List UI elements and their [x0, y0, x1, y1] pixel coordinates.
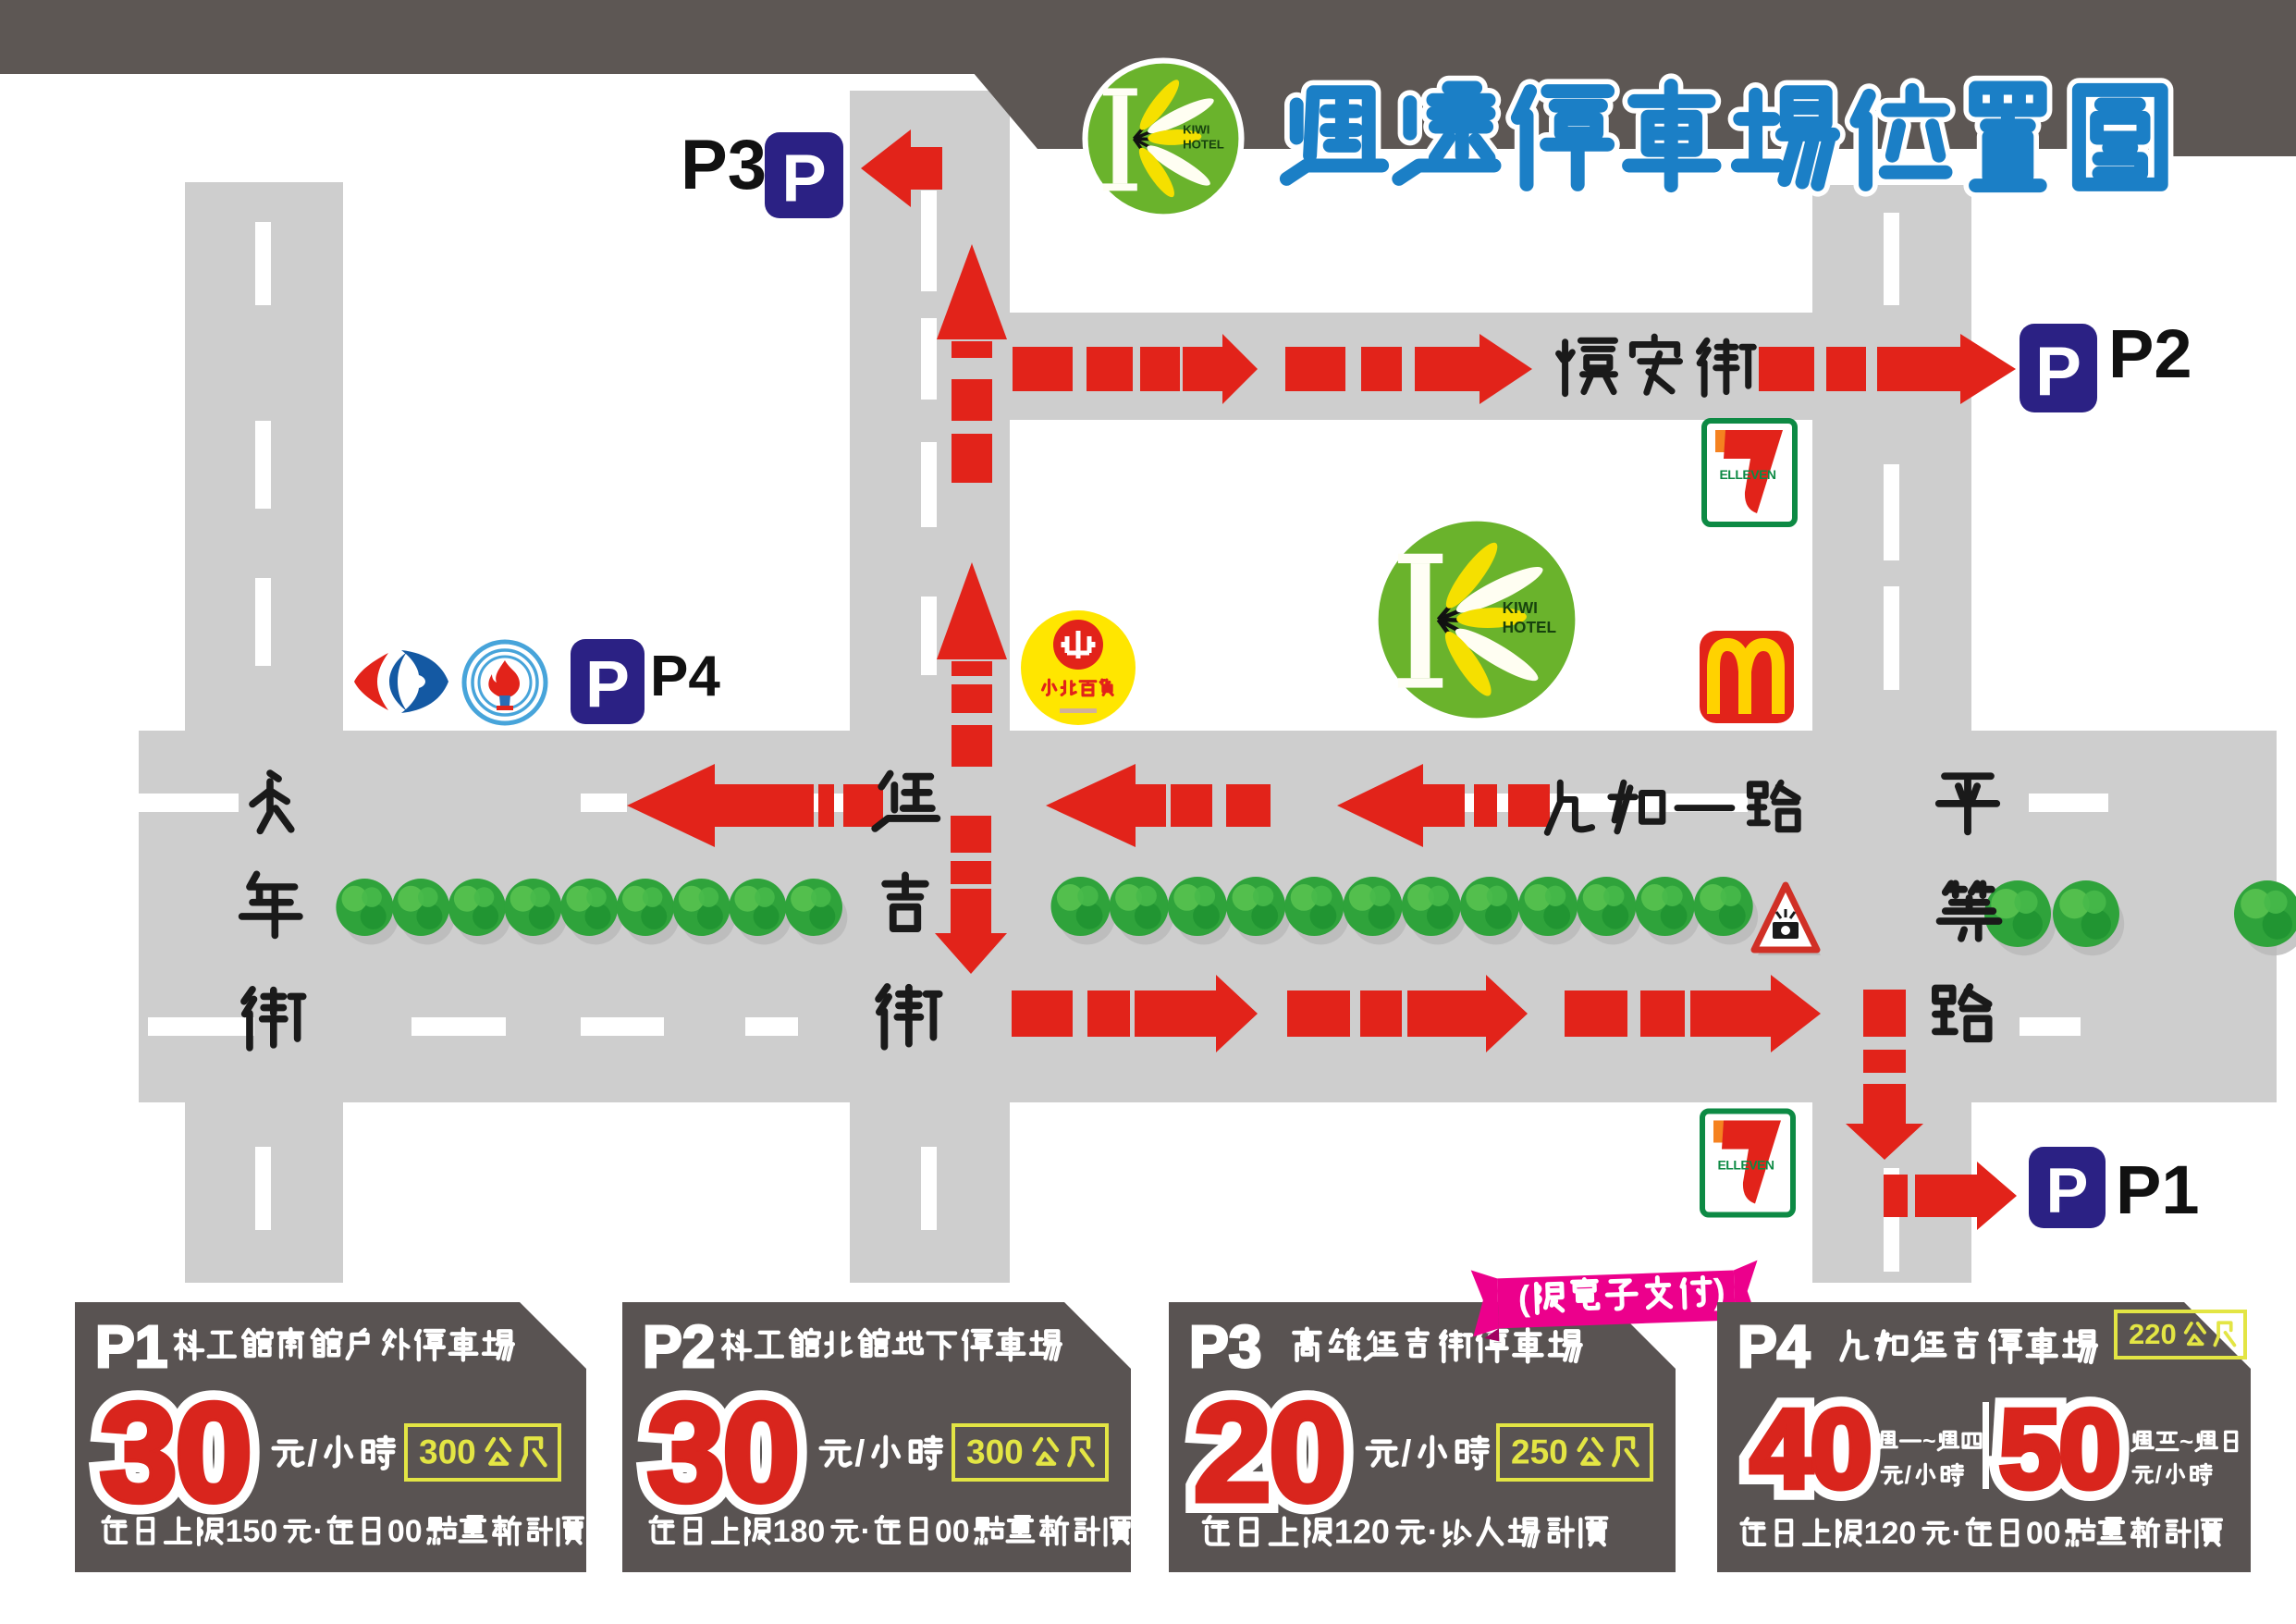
svg-text:P1: P1 [95, 1313, 167, 1380]
svg-text:~: ~ [1922, 1429, 1936, 1455]
svg-text:P1: P1 [2116, 1151, 2200, 1228]
svg-text:·: · [861, 1514, 871, 1549]
svg-text:300: 300 [419, 1433, 476, 1470]
svg-text:180: 180 [773, 1514, 826, 1549]
svg-text:30: 30 [100, 1374, 251, 1530]
svg-text:~: ~ [2179, 1427, 2193, 1455]
svg-text:P: P [585, 648, 630, 722]
svg-text:/: / [307, 1433, 317, 1474]
svg-text:P2: P2 [643, 1313, 715, 1380]
svg-text:/: / [854, 1433, 865, 1474]
svg-text:P: P [2035, 332, 2081, 410]
svg-text:40: 40 [1750, 1387, 1870, 1511]
svg-text:00: 00 [2026, 1516, 2061, 1551]
svg-text:20: 20 [1194, 1374, 1344, 1530]
svg-text:·: · [1428, 1513, 1439, 1551]
svg-text:150: 150 [226, 1514, 278, 1549]
svg-text:P3: P3 [681, 126, 767, 204]
svg-text:250: 250 [1511, 1433, 1568, 1470]
svg-text:120: 120 [1864, 1516, 1917, 1551]
svg-text:00: 00 [387, 1514, 423, 1549]
svg-text:/: / [2155, 1460, 2162, 1488]
svg-text:P: P [2046, 1154, 2089, 1225]
svg-text:P4: P4 [650, 645, 720, 708]
svg-text:·: · [1952, 1516, 1962, 1551]
svg-text:P2: P2 [2108, 315, 2192, 392]
svg-text:(: ( [1517, 1279, 1530, 1318]
svg-text:00: 00 [935, 1514, 970, 1549]
svg-text:P4: P4 [1737, 1313, 1811, 1380]
svg-text:/: / [1905, 1461, 1912, 1489]
svg-text:220: 220 [2129, 1318, 2177, 1350]
svg-text:P: P [781, 141, 826, 215]
svg-text:P3: P3 [1189, 1313, 1261, 1380]
svg-text:/: / [1401, 1433, 1411, 1474]
svg-text:300: 300 [966, 1433, 1024, 1470]
svg-text:·: · [313, 1514, 324, 1549]
svg-text:50: 50 [1999, 1387, 2118, 1511]
svg-text:30: 30 [647, 1374, 798, 1530]
svg-text:120: 120 [1334, 1513, 1390, 1551]
